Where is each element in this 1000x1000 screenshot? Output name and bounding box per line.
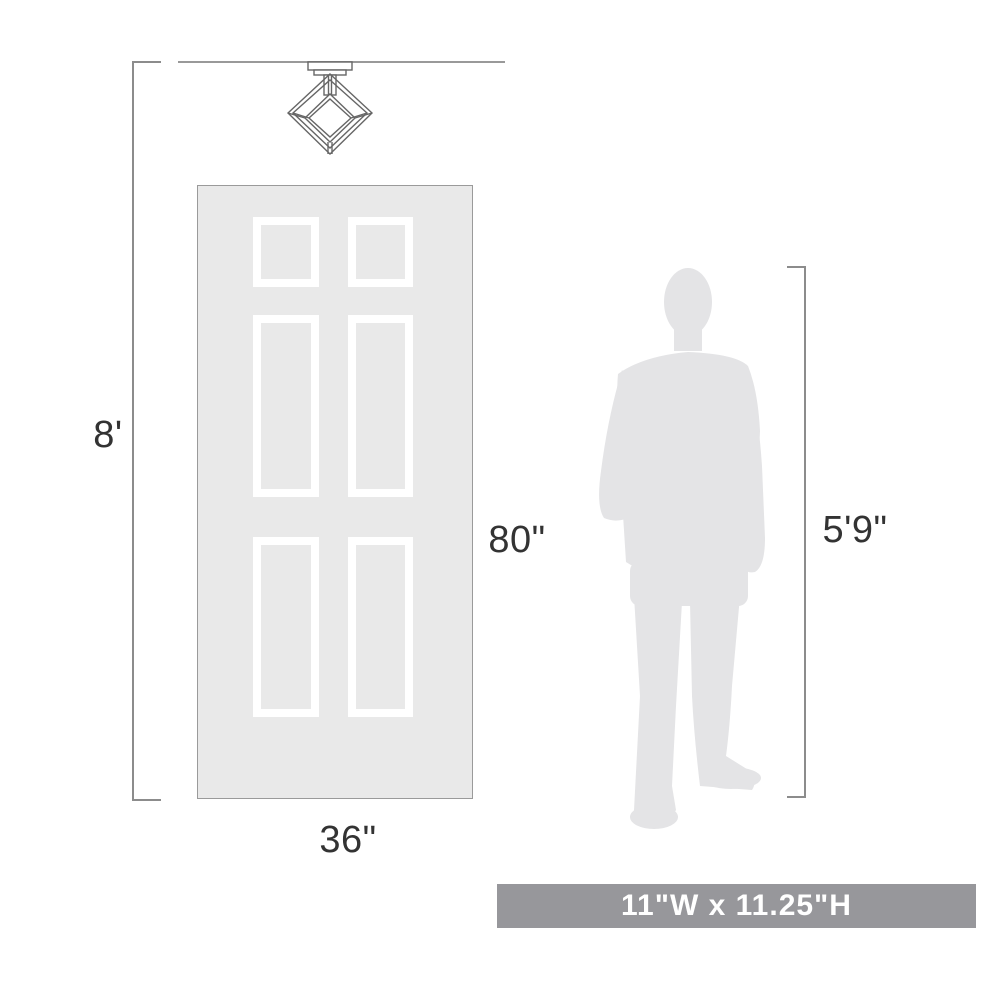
standing-man-silhouette [588, 266, 778, 838]
door-width-label: 36" [313, 819, 383, 862]
person-height-dimension-tick-bottom [787, 796, 806, 798]
door-panel [348, 537, 413, 717]
door-panel [253, 537, 319, 717]
door-panel [348, 217, 413, 287]
person-height-label: 5'9" [810, 509, 900, 552]
cube-cage-semi-flush-light-icon [283, 60, 377, 160]
product-size-text: 11"W x 11.25"H [621, 889, 852, 923]
dimension-diagram: 8' 80" 36" [0, 0, 1000, 1000]
door-panel [253, 217, 319, 287]
ceiling-height-dimension-tick-top [132, 61, 161, 63]
person-height-dimension-line [804, 266, 806, 798]
ceiling-height-label: 8' [78, 414, 138, 457]
six-panel-door-graphic [197, 185, 473, 799]
ceiling-height-dimension-tick-bottom [132, 799, 161, 801]
person-height-dimension-tick-top [787, 266, 806, 268]
door-height-label: 80" [482, 519, 552, 562]
door-panel [348, 315, 413, 497]
door-panel [253, 315, 319, 497]
product-size-banner: 11"W x 11.25"H [497, 884, 976, 928]
